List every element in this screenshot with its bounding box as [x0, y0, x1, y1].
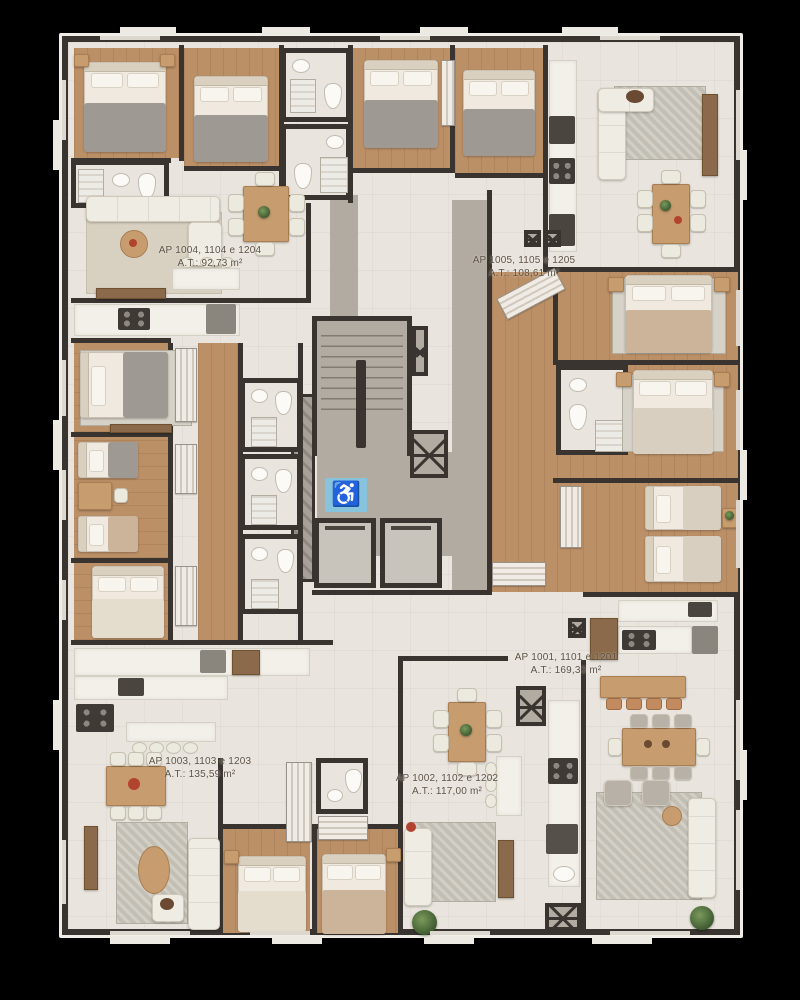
- sink: [251, 547, 268, 561]
- wall: [455, 173, 543, 178]
- chair: [652, 714, 670, 728]
- wardrobe: [175, 348, 197, 422]
- apartment-area: A.T.: 92,73 m²: [125, 257, 295, 270]
- dining-table: [652, 184, 690, 244]
- armchair: [642, 780, 670, 806]
- wall: [71, 558, 171, 563]
- chair: [690, 214, 706, 232]
- wardrobe: [175, 444, 197, 494]
- plant-icon: [725, 511, 734, 520]
- shower: [320, 157, 348, 193]
- wall: [312, 316, 412, 321]
- wardrobe: [441, 60, 455, 126]
- tv-panel: [96, 288, 166, 299]
- window: [62, 840, 66, 904]
- double-bed: [194, 76, 268, 162]
- chair: [486, 710, 502, 728]
- fridge: [692, 626, 718, 654]
- bathroom: [281, 48, 351, 122]
- apartment-area: A.T.: 108,61 m²: [439, 267, 609, 280]
- single-bed: [645, 536, 721, 582]
- stool: [166, 742, 181, 754]
- duct-shaft: [544, 230, 561, 247]
- window: [380, 36, 430, 40]
- nightstand: [386, 848, 401, 862]
- kitchen-island: [172, 268, 240, 290]
- chair: [433, 710, 449, 728]
- armchair: [604, 780, 632, 806]
- apartment-number: AP 1005, 1105 e 1205: [439, 254, 609, 267]
- side-table: [662, 806, 682, 826]
- chair: [433, 734, 449, 752]
- window: [250, 931, 310, 935]
- apartment-label-ap1004: AP 1004, 1104 e 1204 A.T.: 92,73 m²: [125, 244, 295, 270]
- facade-column: [424, 936, 474, 944]
- bathroom: [240, 454, 302, 530]
- facade-column: [53, 120, 61, 170]
- sink: [292, 59, 310, 73]
- chair: [661, 170, 681, 184]
- window: [610, 931, 690, 935]
- oven: [118, 678, 144, 696]
- bathroom: [281, 124, 351, 200]
- double-bed: [322, 854, 386, 934]
- shower: [290, 79, 316, 113]
- sink: [327, 789, 343, 802]
- nightstand: [714, 277, 730, 292]
- chair: [661, 244, 681, 258]
- window: [430, 931, 490, 935]
- chair: [674, 714, 692, 728]
- single-bed: [78, 442, 138, 478]
- wardrobe: [492, 562, 546, 586]
- throw-blanket: [626, 90, 644, 103]
- duct-shaft: [568, 618, 586, 638]
- wall: [71, 640, 333, 645]
- bathroom: [240, 534, 302, 614]
- chair: [128, 806, 144, 820]
- double-bed: [633, 370, 713, 454]
- sink: [553, 866, 575, 882]
- single-bed: [645, 486, 721, 530]
- window: [600, 36, 660, 40]
- stove: [622, 630, 656, 650]
- window: [62, 80, 66, 140]
- sofa: [598, 88, 654, 112]
- wall: [179, 45, 184, 161]
- wall: [184, 166, 280, 171]
- chair: [146, 806, 162, 820]
- cushion: [406, 822, 416, 832]
- accessibility-icon: ♿: [331, 483, 361, 507]
- wall: [487, 190, 492, 595]
- wall: [312, 826, 317, 935]
- nightstand: [224, 850, 239, 864]
- single-bed: [78, 516, 138, 552]
- fridge: [206, 304, 236, 334]
- sink: [112, 173, 130, 187]
- wall: [352, 168, 450, 173]
- window: [736, 500, 740, 568]
- double-bed: [625, 275, 712, 353]
- nightstand: [608, 277, 624, 292]
- bathroom: [240, 378, 302, 452]
- tv-panel: [498, 840, 514, 898]
- chair: [630, 766, 648, 780]
- chair: [674, 766, 692, 780]
- pantry-cabinet: [232, 650, 260, 675]
- throw-blanket: [160, 898, 174, 910]
- sofa: [404, 828, 432, 906]
- kitchen-counter: [74, 676, 228, 700]
- window: [736, 810, 740, 890]
- nightstand: [160, 54, 175, 67]
- oven: [549, 116, 575, 144]
- apartment-number: AP 1002, 1102 e 1202: [362, 772, 532, 785]
- nightstand: [616, 372, 632, 387]
- window: [736, 290, 740, 346]
- nightstand: [714, 372, 730, 387]
- apartment-number: AP 1003, 1103 e 1203: [115, 755, 285, 768]
- chair: [637, 214, 653, 232]
- facade-column: [272, 936, 322, 944]
- accessible-waiting-area: ♿: [325, 478, 367, 512]
- plant-icon: [460, 724, 472, 736]
- facade-column: [739, 750, 747, 800]
- chair: [114, 488, 128, 503]
- tv-panel: [84, 826, 98, 890]
- kitchen-island: [126, 722, 216, 742]
- toilet: [275, 469, 292, 493]
- toilet: [569, 404, 587, 430]
- plant-icon: [660, 200, 671, 211]
- living-rug: [596, 792, 702, 900]
- shower: [595, 420, 623, 452]
- corridor-floor: [330, 195, 358, 320]
- chair: [630, 714, 648, 728]
- shower: [251, 579, 279, 609]
- tv-shelf: [110, 424, 172, 433]
- stove: [548, 758, 578, 784]
- fridge: [546, 824, 578, 854]
- duct-shaft: [545, 903, 581, 931]
- kitchen-counter: [74, 648, 310, 676]
- stool: [666, 698, 682, 710]
- stove: [118, 308, 150, 330]
- chair: [289, 194, 305, 212]
- window: [62, 360, 66, 416]
- sink: [326, 135, 344, 149]
- chair: [696, 738, 710, 756]
- toilet: [277, 549, 294, 573]
- shower: [251, 417, 277, 447]
- kitchen-counter: [548, 700, 580, 887]
- sofa: [188, 838, 220, 930]
- toilet: [324, 83, 342, 109]
- chair: [289, 218, 305, 236]
- double-bed: [80, 352, 168, 418]
- wall: [312, 590, 492, 595]
- duct-shaft: [524, 230, 541, 247]
- window: [110, 931, 190, 935]
- window: [736, 390, 740, 450]
- facade-column: [110, 936, 170, 944]
- facade-column: [562, 27, 618, 35]
- stool: [183, 742, 198, 754]
- facade-column: [262, 27, 310, 35]
- double-bed: [92, 566, 164, 638]
- chair: [690, 190, 706, 208]
- fridge: [200, 650, 226, 673]
- apartment-area: A.T.: 169,33 m²: [481, 664, 651, 677]
- stool: [606, 698, 622, 710]
- wall: [553, 478, 740, 483]
- bathroom: [316, 758, 368, 814]
- wall: [581, 660, 586, 935]
- apartment-label-ap1002: AP 1002, 1102 e 1202 A.T.: 117,00 m²: [362, 772, 532, 798]
- stool: [646, 698, 662, 710]
- double-bed: [364, 60, 438, 148]
- window: [100, 36, 160, 40]
- facade-column: [120, 27, 176, 35]
- facade-column: [739, 450, 747, 500]
- toilet: [294, 163, 312, 189]
- toilet: [275, 391, 292, 415]
- sofa: [86, 196, 220, 222]
- coffee-table: [138, 846, 170, 894]
- wall: [407, 316, 412, 456]
- apartment-label-ap1001: AP 1001, 1101 e 1201 A.T.: 169,33 m²: [481, 651, 651, 677]
- facade-column: [739, 150, 747, 200]
- decor: [674, 216, 682, 224]
- chair: [652, 766, 670, 780]
- wall: [583, 592, 740, 597]
- apartment-number: AP 1001, 1101 e 1201: [481, 651, 651, 664]
- sink: [251, 389, 268, 403]
- duct-shaft: [516, 686, 546, 726]
- window: [62, 470, 66, 520]
- floor-plan-render: ♿: [0, 0, 800, 1000]
- window: [736, 700, 740, 780]
- hallway-wood-floor: [198, 343, 238, 640]
- double-bed: [238, 856, 306, 932]
- stove: [549, 158, 575, 184]
- plant-icon: [258, 206, 270, 218]
- chair: [228, 218, 244, 236]
- sink: [251, 467, 268, 481]
- chair: [486, 734, 502, 752]
- shower: [251, 495, 277, 525]
- stove: [76, 704, 114, 732]
- facade-column: [53, 420, 61, 470]
- apartment-number: AP 1004, 1104 e 1204: [125, 244, 295, 257]
- toilet: [345, 769, 362, 793]
- desk: [78, 482, 112, 510]
- sofa: [688, 798, 716, 898]
- elevator-2: [380, 518, 442, 588]
- wall: [71, 338, 171, 343]
- wardrobe: [560, 486, 582, 548]
- stair-rail: [356, 360, 366, 448]
- wardrobe: [286, 762, 312, 842]
- dining-table: [622, 728, 696, 766]
- decor: [644, 740, 652, 748]
- apartment-area: A.T.: 117,00 m²: [362, 785, 532, 798]
- window: [62, 580, 66, 620]
- wardrobe: [175, 566, 197, 626]
- apartment-label-ap1003: AP 1003, 1103 e 1203 A.T.: 135,59 m²: [115, 755, 285, 781]
- wardrobe: [318, 816, 368, 840]
- duct-shaft: [412, 326, 428, 376]
- double-bed: [463, 70, 535, 156]
- tv-panel: [702, 94, 718, 176]
- apartment-label-ap1005: AP 1005, 1105 e 1205 A.T.: 108,61 m²: [439, 254, 609, 280]
- plant-icon: [690, 906, 714, 930]
- chair: [255, 172, 275, 186]
- cooktop: [688, 602, 712, 617]
- chair: [457, 688, 477, 702]
- stool: [626, 698, 642, 710]
- chair: [110, 806, 126, 820]
- apartment-area: A.T.: 135,59 m²: [115, 768, 285, 781]
- window: [736, 90, 740, 160]
- decor: [662, 740, 670, 748]
- bar-counter: [600, 676, 686, 698]
- chair: [608, 738, 622, 756]
- double-bed: [84, 62, 166, 152]
- nightstand: [74, 54, 89, 67]
- facade-column: [53, 700, 61, 750]
- wall: [312, 316, 317, 456]
- elevator-1: [314, 518, 376, 588]
- chair: [637, 190, 653, 208]
- facade-column: [592, 936, 652, 944]
- facade-column: [420, 27, 468, 35]
- sink: [569, 378, 587, 392]
- chair: [228, 194, 244, 212]
- duct-shaft: [410, 430, 448, 478]
- wall: [306, 203, 311, 303]
